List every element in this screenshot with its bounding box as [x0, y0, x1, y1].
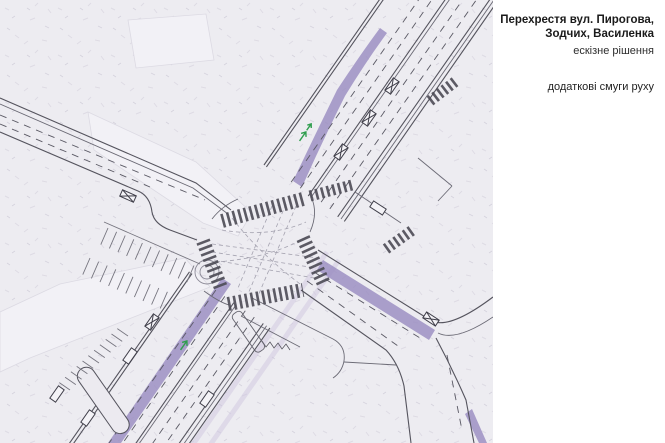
- plan-note: додаткові смуги руху: [499, 81, 654, 93]
- title-panel: Перехрестя вул. Пирогова, Зодчих, Василе…: [493, 0, 665, 443]
- plan-title-line2: Зодчих, Василенка: [499, 27, 654, 41]
- intersection-plan-drawing: [0, 0, 493, 443]
- sketch-plan-page: Перехрестя вул. Пирогова, Зодчих, Василе…: [0, 0, 665, 443]
- plan-title-line1: Перехрестя вул. Пирогова,: [499, 13, 654, 27]
- plan-subtitle: ескізне рішення: [499, 44, 654, 58]
